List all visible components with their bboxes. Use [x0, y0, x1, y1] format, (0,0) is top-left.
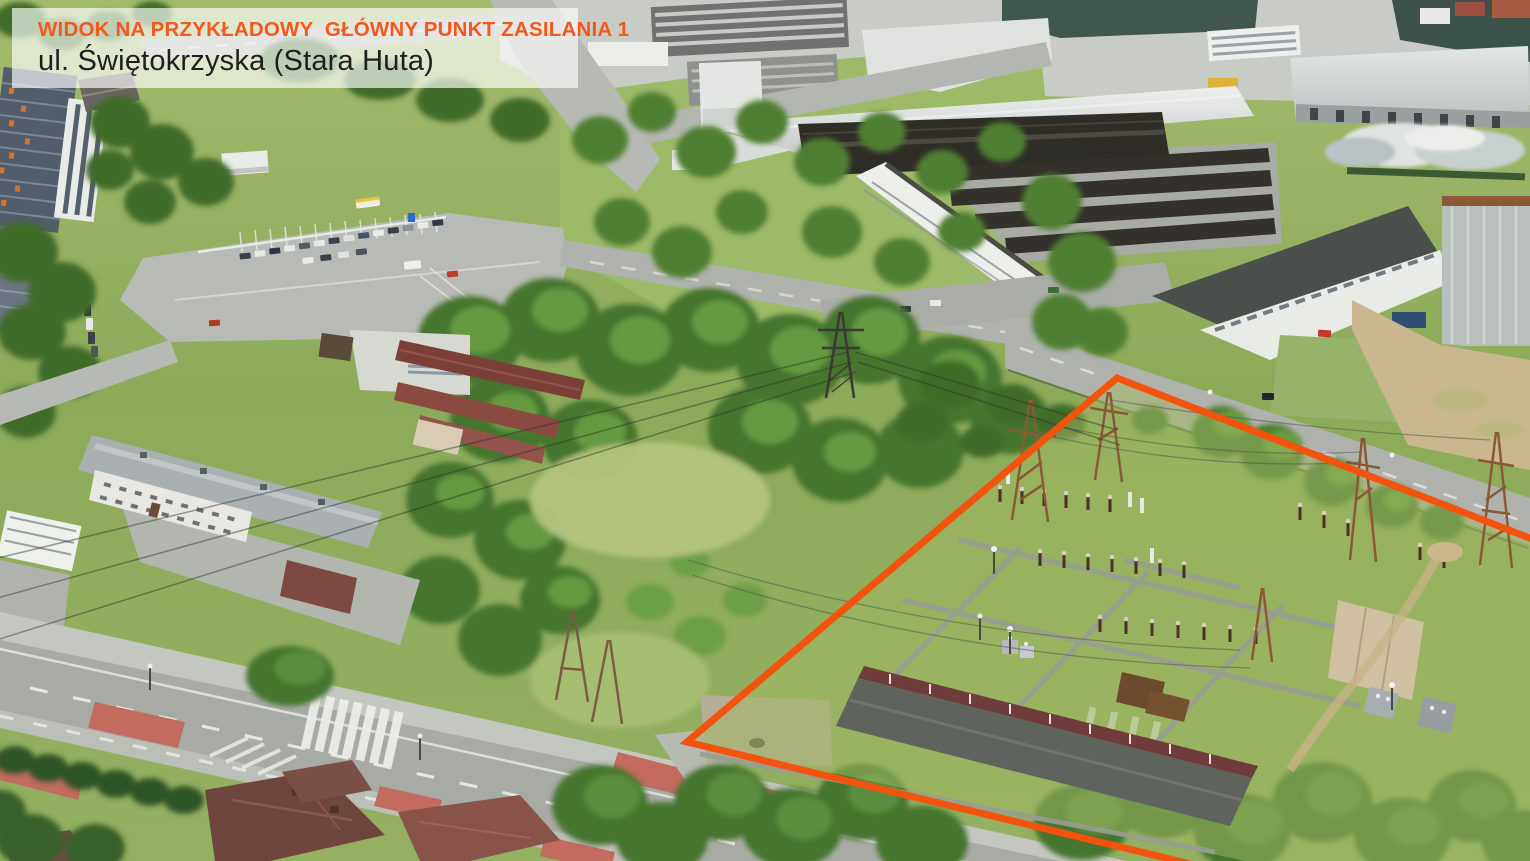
- red-roof-building: [1492, 0, 1530, 18]
- portable-toilet: [408, 213, 415, 222]
- caption-subtitle: ul. Świętokrzyska (Stara Huta): [38, 45, 568, 78]
- red-car: [209, 320, 220, 327]
- white-multistory: [1207, 25, 1301, 61]
- meadow: [530, 442, 770, 558]
- red-car: [447, 270, 459, 277]
- red-roof-building: [1455, 2, 1485, 16]
- caption-title: WIDOK NA PRZYKŁADOWY GŁÓWNY PUNKT ZASILA…: [38, 17, 568, 43]
- aerial-photo: WIDOK NA PRZYKŁADOWY GŁÓWNY PUNKT ZASILA…: [0, 0, 1530, 861]
- aerial-photo-canvas: [0, 0, 1530, 861]
- caption-overlay: WIDOK NA PRZYKŁADOWY GŁÓWNY PUNKT ZASILA…: [12, 8, 578, 88]
- red-van: [1318, 330, 1331, 338]
